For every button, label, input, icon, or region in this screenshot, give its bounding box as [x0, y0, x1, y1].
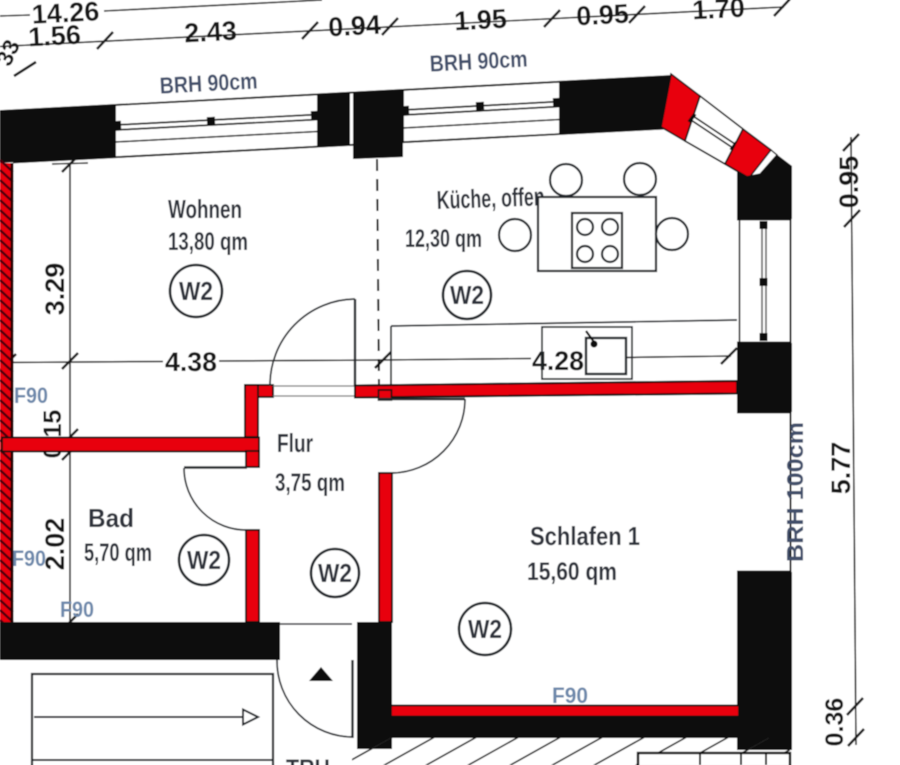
svg-text:13,80 qm: 13,80 qm [168, 228, 248, 256]
svg-text:F90: F90 [14, 383, 48, 408]
svg-text:F90: F90 [60, 597, 94, 622]
svg-text:3,75 qm: 3,75 qm [275, 469, 345, 497]
svg-text:15,60 qm: 15,60 qm [527, 558, 617, 586]
svg-text:4.28: 4.28 [532, 346, 584, 376]
svg-text:Wohnen: Wohnen [168, 194, 242, 224]
svg-text:0.95: 0.95 [834, 156, 864, 209]
svg-text:1.56: 1.56 [27, 20, 81, 53]
svg-text:Schlafen 1: Schlafen 1 [530, 521, 640, 551]
svg-text:0.95: 0.95 [575, 0, 629, 31]
svg-text:5.77: 5.77 [826, 442, 856, 495]
svg-text:3.29: 3.29 [40, 263, 70, 316]
svg-text:BRH 90cm: BRH 90cm [429, 45, 528, 76]
svg-text:F90: F90 [12, 546, 46, 571]
svg-text:BRH 90cm: BRH 90cm [159, 67, 258, 98]
svg-text:W2: W2 [450, 280, 484, 310]
svg-text:1.95: 1.95 [453, 4, 507, 37]
svg-text:Küche, offen: Küche, offen [436, 181, 545, 215]
svg-text:TRH: TRH [286, 755, 330, 765]
svg-text:W2: W2 [179, 276, 213, 306]
svg-text:W2: W2 [187, 545, 221, 575]
svg-text:1.70: 1.70 [691, 0, 745, 25]
svg-text:5,70 qm: 5,70 qm [84, 539, 152, 567]
svg-text:BRH 100cm: BRH 100cm [782, 422, 808, 562]
svg-text:F90: F90 [552, 683, 588, 708]
svg-text:0.94: 0.94 [327, 10, 381, 43]
svg-text:Bad: Bad [88, 503, 134, 533]
svg-text:W2: W2 [318, 558, 352, 588]
svg-text:0.36: 0.36 [821, 698, 849, 747]
svg-text:Flur: Flur [277, 428, 313, 458]
svg-text:12,30 qm: 12,30 qm [405, 225, 482, 253]
svg-text:4.38: 4.38 [165, 347, 217, 377]
svg-text:2.43: 2.43 [183, 16, 237, 49]
svg-text:W2: W2 [468, 614, 502, 644]
